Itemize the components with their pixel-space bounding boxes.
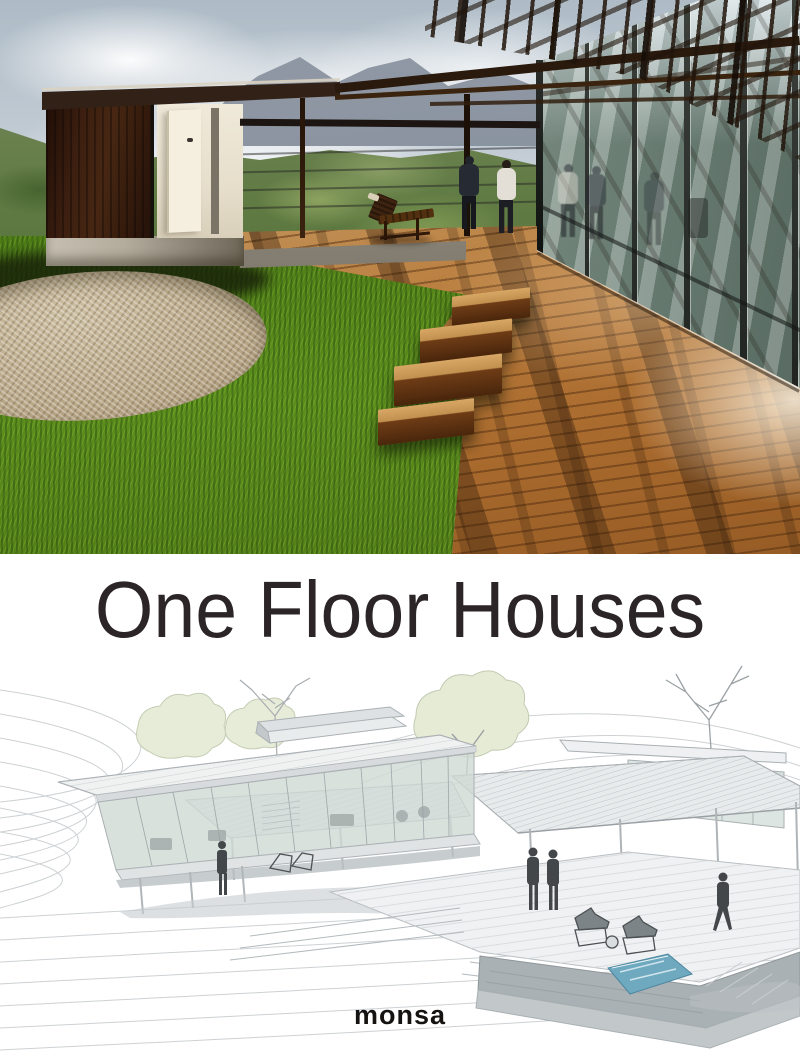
pergola-post bbox=[300, 98, 305, 238]
house-wood-wall bbox=[46, 104, 154, 238]
sliding-door-frame bbox=[536, 60, 543, 256]
chair-reflection bbox=[688, 198, 708, 238]
wooden-lounge-chair bbox=[368, 194, 438, 244]
person-reflection bbox=[642, 172, 666, 245]
chair-rail bbox=[380, 231, 430, 239]
person-woman bbox=[494, 160, 518, 233]
wall-lamp bbox=[187, 138, 193, 142]
person-man bbox=[457, 156, 481, 229]
open-door-leaf bbox=[167, 109, 201, 233]
person-reflection bbox=[556, 164, 580, 237]
person-reflection bbox=[584, 166, 608, 239]
concrete-plinth bbox=[46, 236, 244, 266]
cover-photo bbox=[0, 0, 800, 554]
house-interior bbox=[157, 104, 243, 238]
chair-leg bbox=[384, 221, 387, 240]
book-title: One Floor Houses bbox=[24, 570, 776, 650]
trees-left bbox=[137, 678, 311, 758]
publisher-logo: monsa bbox=[0, 1002, 800, 1029]
chair-leg bbox=[416, 218, 419, 240]
interior-wall-strip bbox=[211, 108, 219, 234]
book-cover: One Floor Houses bbox=[0, 0, 800, 1063]
cover-lower: One Floor Houses bbox=[0, 554, 800, 1063]
